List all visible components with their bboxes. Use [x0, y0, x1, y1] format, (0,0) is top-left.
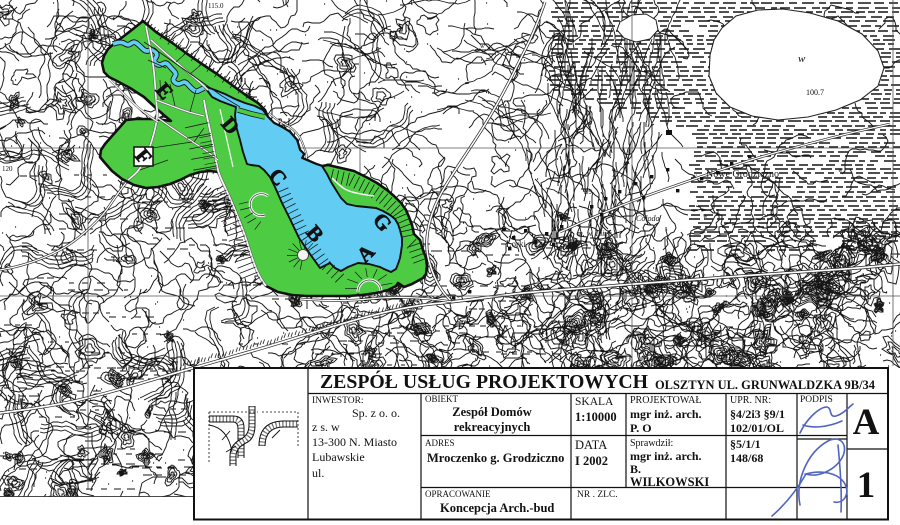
svg-text:Nowe Grodziczno: Nowe Grodziczno: [706, 169, 779, 180]
svg-text:INWESTOR:: INWESTOR:: [312, 396, 364, 406]
svg-text:SKALA: SKALA: [575, 396, 614, 408]
svg-text:1:10000: 1:10000: [575, 410, 617, 424]
svg-text:99: 99: [585, 188, 593, 196]
svg-text:DATA: DATA: [575, 438, 607, 452]
svg-text:§4/2i3 §9/1: §4/2i3 §9/1: [730, 407, 785, 421]
svg-text:w: w: [838, 166, 843, 174]
svg-text:148/68: 148/68: [730, 451, 763, 465]
svg-text:m. w. Iniec: m. w. Iniec: [577, 229, 612, 238]
svg-text:Cołodo: Cołodo: [636, 214, 660, 223]
svg-text:ul.: ul.: [312, 466, 324, 480]
svg-text:102/01/OL: 102/01/OL: [730, 421, 784, 435]
svg-text:100.7: 100.7: [806, 88, 824, 97]
svg-text:101.1: 101.1: [560, 338, 576, 346]
svg-text:z s. w: z s. w: [312, 420, 340, 434]
svg-text:13-300 N. Miasto: 13-300 N. Miasto: [312, 435, 397, 449]
svg-text:w: w: [798, 53, 806, 65]
svg-text:OBIEKT: OBIEKT: [425, 394, 458, 404]
svg-text:115.0: 115.0: [208, 2, 224, 10]
svg-text:OPRACOWANIE: OPRACOWANIE: [425, 489, 491, 499]
svg-text:PROJEKTOWAŁ: PROJEKTOWAŁ: [630, 395, 701, 406]
svg-text:I 2002: I 2002: [575, 454, 608, 468]
svg-text:Koncepcja Arch.-bud: Koncepcja Arch.-bud: [440, 501, 554, 515]
svg-text:122.4: 122.4: [112, 256, 128, 264]
svg-text:Zespół Domów: Zespół Domów: [452, 405, 532, 419]
svg-text:UPR. NR:: UPR. NR:: [730, 395, 771, 406]
svg-text:§5/1/1: §5/1/1: [730, 437, 761, 451]
svg-text:w: w: [703, 212, 708, 220]
svg-text:mgr inż. arch.: mgr inż. arch.: [630, 449, 702, 463]
svg-text:OLSZTYN UL. GRUNWALDZKA 9B/34: OLSZTYN UL. GRUNWALDZKA 9B/34: [655, 378, 876, 392]
svg-text:mgr inż. arch.: mgr inż. arch.: [630, 407, 702, 421]
svg-text:WILKOWSKI: WILKOWSKI: [630, 475, 709, 489]
svg-text:PODPIS: PODPIS: [800, 395, 833, 405]
svg-text:rekreacyjnych: rekreacyjnych: [454, 420, 531, 434]
svg-text:ZESPÓŁ USŁUG PROJEKTOWYCH: ZESPÓŁ USŁUG PROJEKTOWYCH: [320, 369, 648, 393]
svg-text:Sp. z o. o.: Sp. z o. o.: [352, 406, 400, 420]
svg-text:A: A: [853, 402, 880, 443]
svg-text:w: w: [692, 172, 697, 180]
svg-text:Lubawskie: Lubawskie: [312, 450, 365, 464]
svg-text:P. O: P. O: [630, 421, 652, 435]
svg-text:1: 1: [857, 465, 876, 506]
svg-text:NR . ZLC.: NR . ZLC.: [577, 490, 618, 500]
svg-text:B.: B.: [630, 462, 641, 476]
svg-text:Sprawdził:: Sprawdził:: [630, 438, 673, 449]
svg-text:ADRES: ADRES: [425, 438, 455, 448]
svg-text:120: 120: [2, 165, 13, 173]
svg-text:Mroczenko g. Grodziczno: Mroczenko g. Grodziczno: [427, 451, 564, 465]
svg-text:Lorki: Lorki: [506, 239, 526, 249]
svg-text:w: w: [480, 42, 485, 50]
